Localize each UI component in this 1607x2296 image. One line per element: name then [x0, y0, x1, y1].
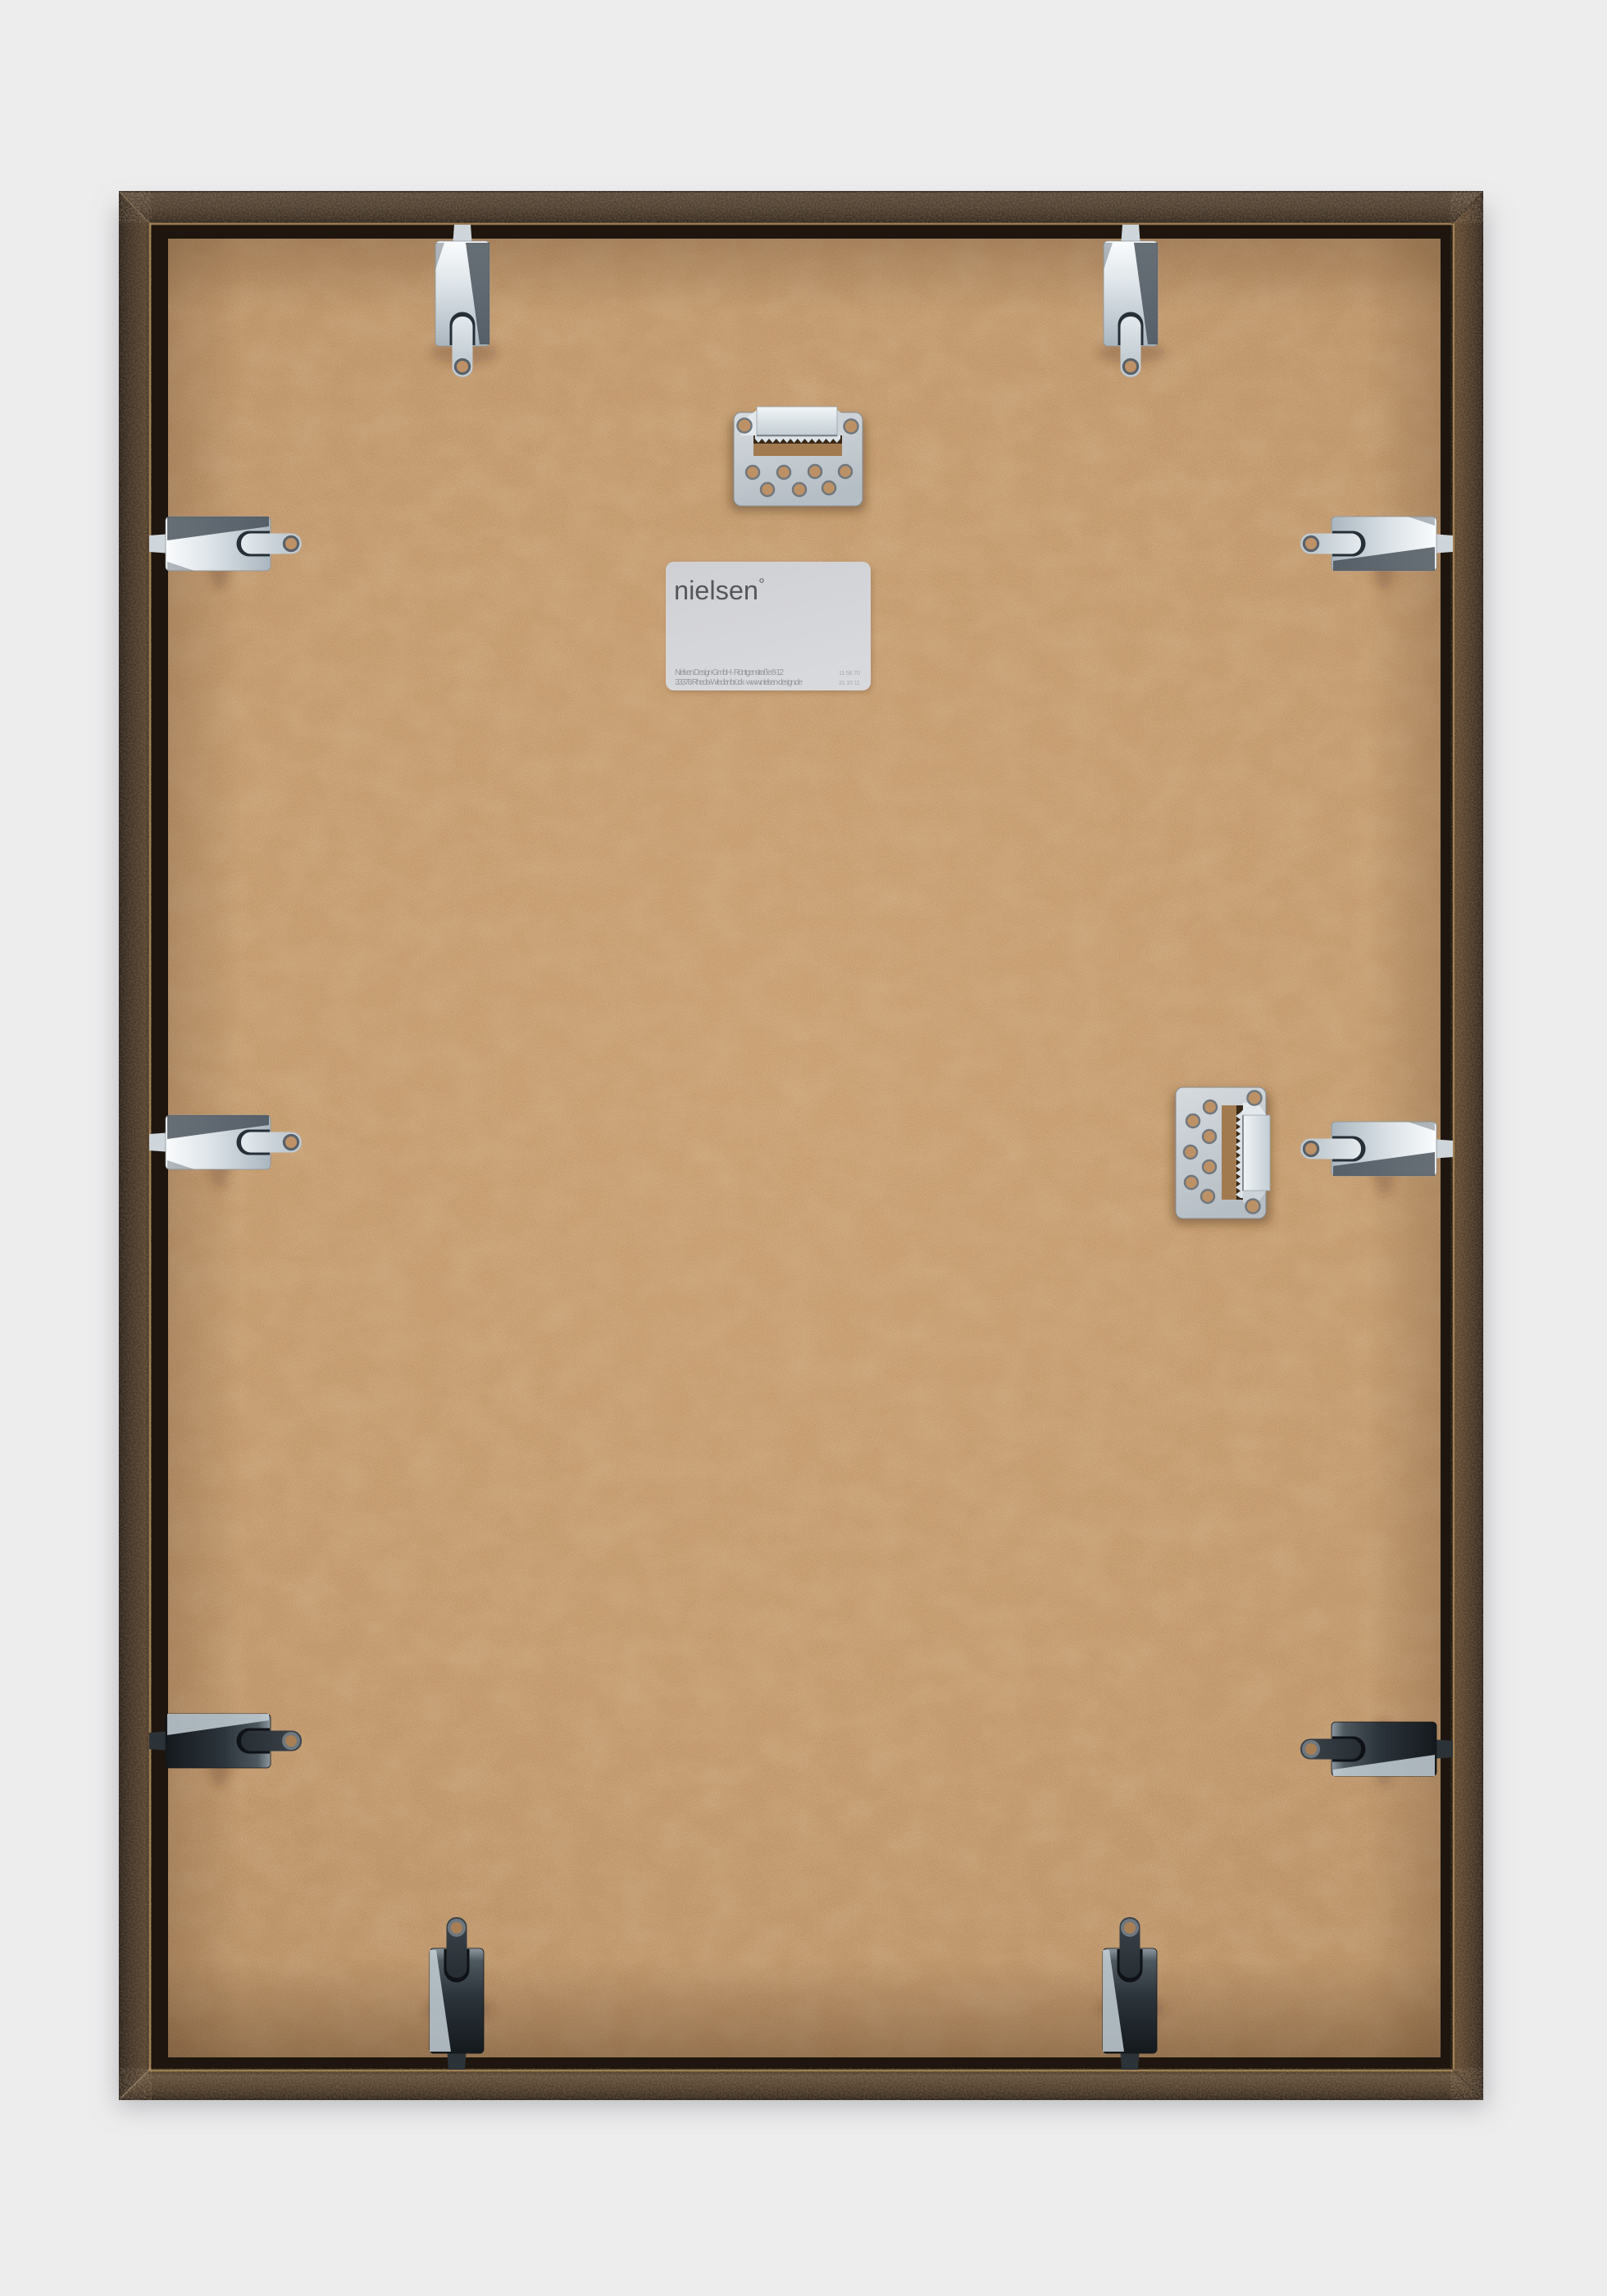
svg-text:Nielsen Design GmbH · Röntgens: Nielsen Design GmbH · Röntgenstraße 8-12 — [675, 668, 784, 677]
svg-text:21 10 11: 21 10 11 — [839, 679, 860, 686]
svg-text:nielsen: nielsen — [674, 576, 758, 605]
svg-text:33378 Rheda-Wiedenbrück · www.: 33378 Rheda-Wiedenbrück · www.nielsen-de… — [675, 678, 803, 687]
svg-text:11 56 70: 11 56 70 — [839, 669, 860, 676]
